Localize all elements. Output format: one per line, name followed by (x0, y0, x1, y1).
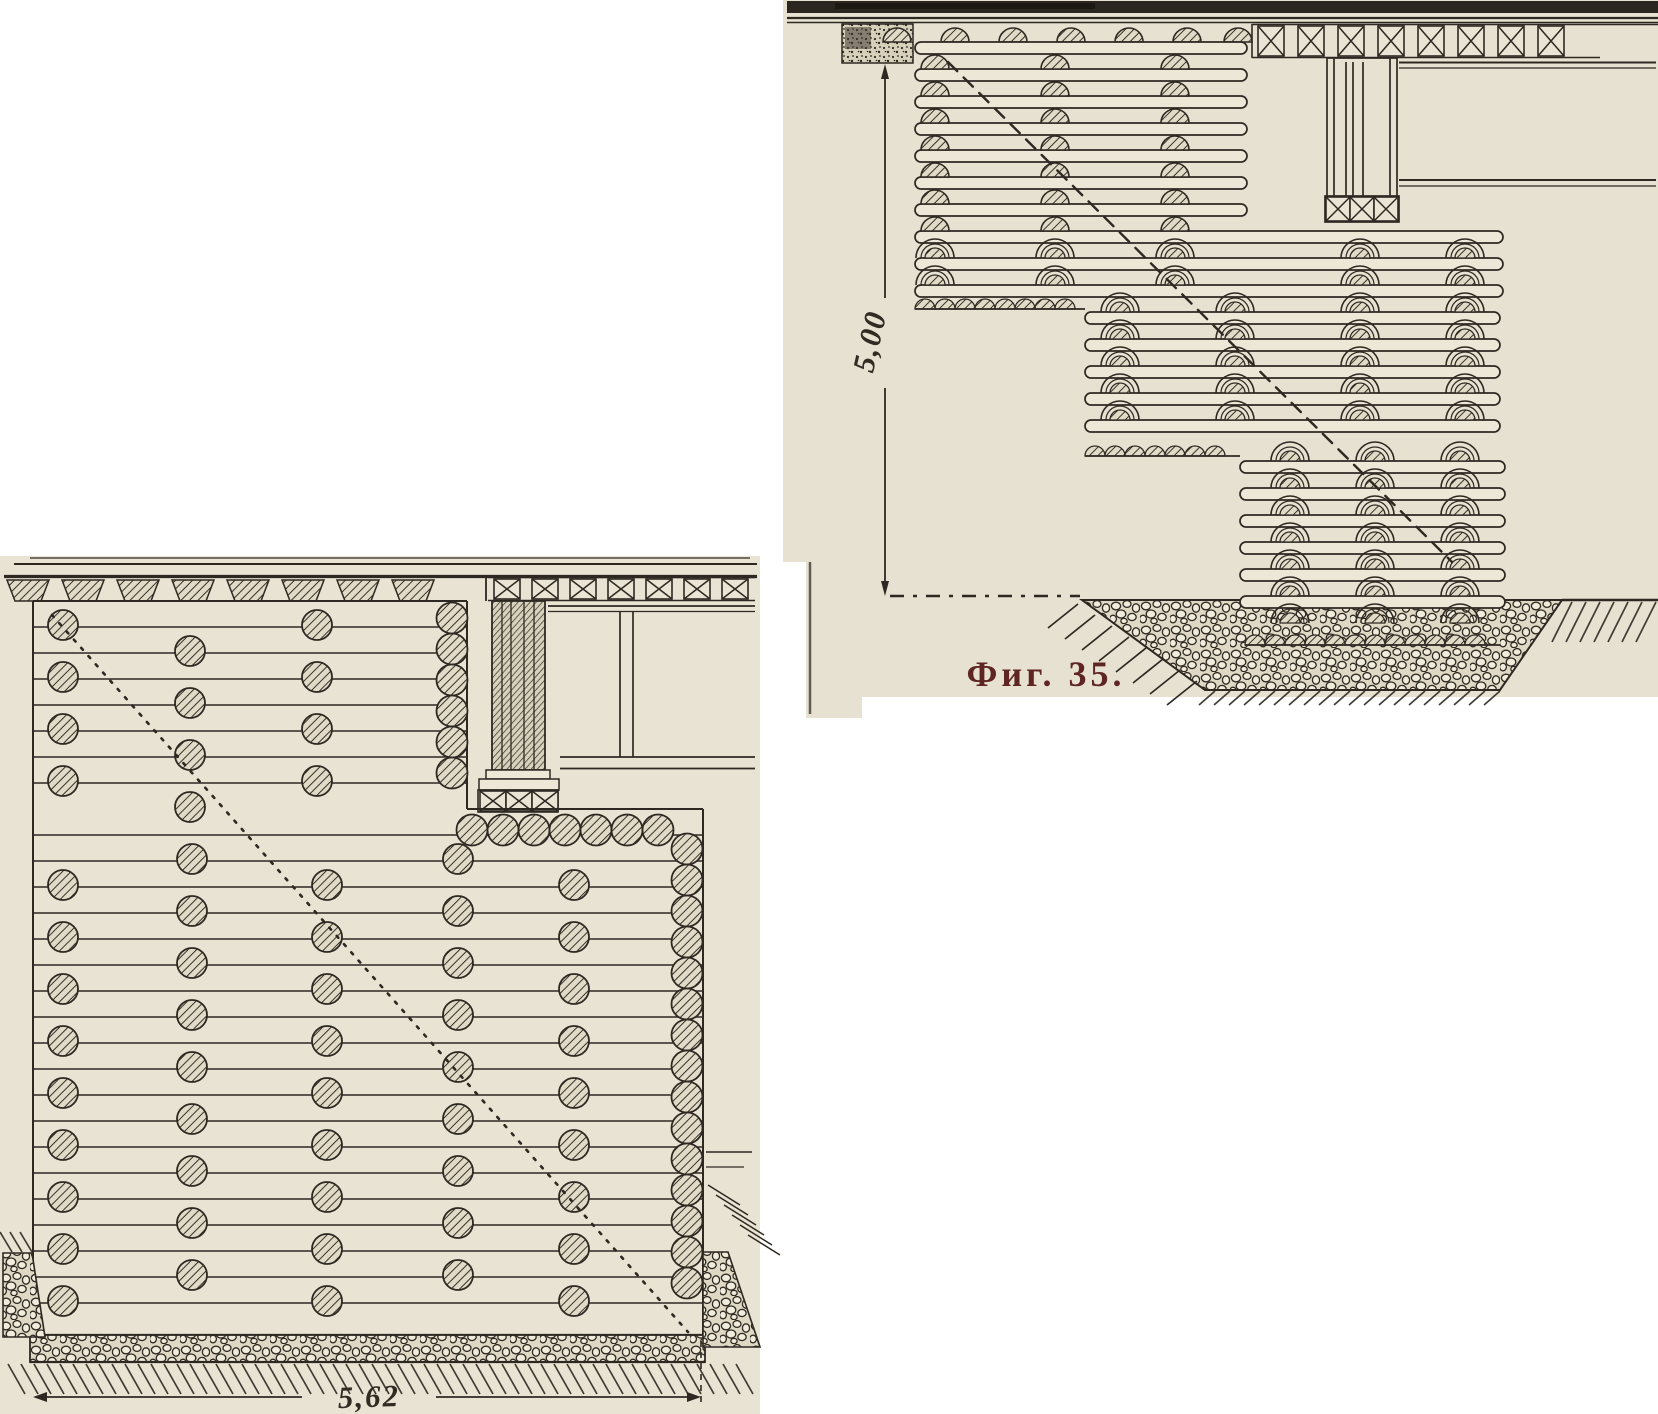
log-end-circle (48, 1286, 78, 1316)
log-end-circle (443, 1260, 473, 1290)
log-end-circle (443, 1104, 473, 1134)
plank (915, 258, 1503, 270)
log-end-circle (302, 662, 332, 692)
log-end-circle (175, 740, 205, 770)
plank (1085, 366, 1500, 378)
cap-log-top (172, 580, 214, 601)
log-end-circle (443, 948, 473, 978)
log-end-circle (48, 1078, 78, 1108)
log-end-circle (48, 766, 78, 796)
log-end-circle (48, 1234, 78, 1264)
cap-log-top (227, 580, 269, 601)
log-end-circle (175, 636, 205, 666)
log-end-circle (437, 634, 468, 665)
plank (915, 204, 1247, 216)
log-end-circle (581, 815, 612, 846)
log-end-circle (672, 834, 703, 865)
log-end-circle (559, 1182, 589, 1212)
log-end-circle (550, 815, 581, 846)
log-end-circle (672, 1237, 703, 1268)
log-end-circle (672, 1268, 703, 1299)
dimension-label-5-62: 5,62 (337, 1378, 400, 1414)
cap-log-top (282, 580, 324, 601)
log-end-circle (672, 989, 703, 1020)
log-end-circle (672, 865, 703, 896)
log-end-circle (672, 1020, 703, 1051)
diagram-svg: 5,00 Фиг. 35. 5,62 (0, 0, 1658, 1414)
pier-plinth-upper (486, 770, 550, 779)
scanned-book-page: 5,00 Фиг. 35. 5,62 (0, 0, 1658, 1414)
log-end-circle (443, 844, 473, 874)
log-end-circle (48, 662, 78, 692)
log-end-circle (612, 815, 643, 846)
plank (915, 150, 1247, 162)
log-end-circle (443, 1156, 473, 1186)
log-end-circle (672, 1144, 703, 1175)
log-end-circle (488, 815, 519, 846)
ballast-block-shadow (845, 27, 871, 49)
log-end-circle (559, 974, 589, 1004)
log-end-circle (312, 1286, 342, 1316)
plank (915, 42, 1247, 54)
log-end-circle (437, 758, 468, 789)
log-end-circle (312, 1130, 342, 1160)
deck-top-band-dark (835, 3, 1095, 9)
log-end-circle (559, 1078, 589, 1108)
log-end-circle (48, 922, 78, 952)
plank (1085, 420, 1500, 432)
cap-log-top (392, 580, 434, 601)
log-end-circle (177, 844, 207, 874)
log-end-circle (443, 896, 473, 926)
log-end-circle (559, 1026, 589, 1056)
log-end-circle (672, 1113, 703, 1144)
log-end-circle (672, 927, 703, 958)
log-end-circle (443, 1000, 473, 1030)
plank (915, 177, 1247, 189)
log-end-circle (48, 1026, 78, 1056)
log-end-circle (48, 1182, 78, 1212)
log-end-circle (437, 603, 468, 634)
log-end-circle (177, 1052, 207, 1082)
cap-log-top (7, 580, 49, 601)
log-end-circle (559, 1234, 589, 1264)
rubble-bed (30, 1335, 705, 1362)
pier-plinth-lower (479, 779, 559, 790)
log-end-circle (177, 1000, 207, 1030)
log-end-circle (177, 1208, 207, 1238)
log-end-circle (312, 1182, 342, 1212)
log-end-circle (443, 1208, 473, 1238)
log-end-circle (48, 974, 78, 1004)
log-end-circle (312, 870, 342, 900)
plank (915, 123, 1247, 135)
cap-log-top (117, 580, 159, 601)
plank (915, 231, 1503, 243)
log-end-circle (302, 714, 332, 744)
plank (1085, 339, 1500, 351)
log-end-circle (672, 958, 703, 989)
plank (915, 96, 1247, 108)
log-end-circle (643, 815, 674, 846)
log-end-circle (672, 1175, 703, 1206)
log-end-circle (672, 1082, 703, 1113)
log-end-circle (672, 896, 703, 927)
log-end-circle (177, 1104, 207, 1134)
log-end-circle (443, 1052, 473, 1082)
log-end-circle (177, 896, 207, 926)
cap-log-top (62, 580, 104, 601)
log-end-circle (559, 922, 589, 952)
log-end-circle (559, 1286, 589, 1316)
log-end-circle (177, 1156, 207, 1186)
log-end-circle (48, 714, 78, 744)
figure-35-caption: Фиг. 35. (967, 654, 1126, 694)
log-end-circle (177, 948, 207, 978)
log-end-circle (302, 766, 332, 796)
log-end-circle (437, 696, 468, 727)
pier-column (492, 601, 545, 770)
log-end-circle (177, 1260, 207, 1290)
log-end-circle (312, 1026, 342, 1056)
log-end-circle (672, 1206, 703, 1237)
log-end-circle (175, 792, 205, 822)
log-end-circle (672, 1051, 703, 1082)
log-end-circle (48, 1130, 78, 1160)
log-end-circle (457, 815, 488, 846)
log-end-circle (302, 610, 332, 640)
log-end-circle (312, 1078, 342, 1108)
log-end-circle (519, 815, 550, 846)
plank (915, 285, 1503, 297)
log-end-circle (175, 688, 205, 718)
cap-log-top (337, 580, 379, 601)
log-end-circle (437, 727, 468, 758)
log-end-circle (312, 974, 342, 1004)
log-end-circle (48, 870, 78, 900)
log-end-circle (559, 1130, 589, 1160)
log-end-circle (312, 1234, 342, 1264)
log-end-circle (437, 665, 468, 696)
plank (1085, 312, 1500, 324)
log-end-circle (559, 870, 589, 900)
